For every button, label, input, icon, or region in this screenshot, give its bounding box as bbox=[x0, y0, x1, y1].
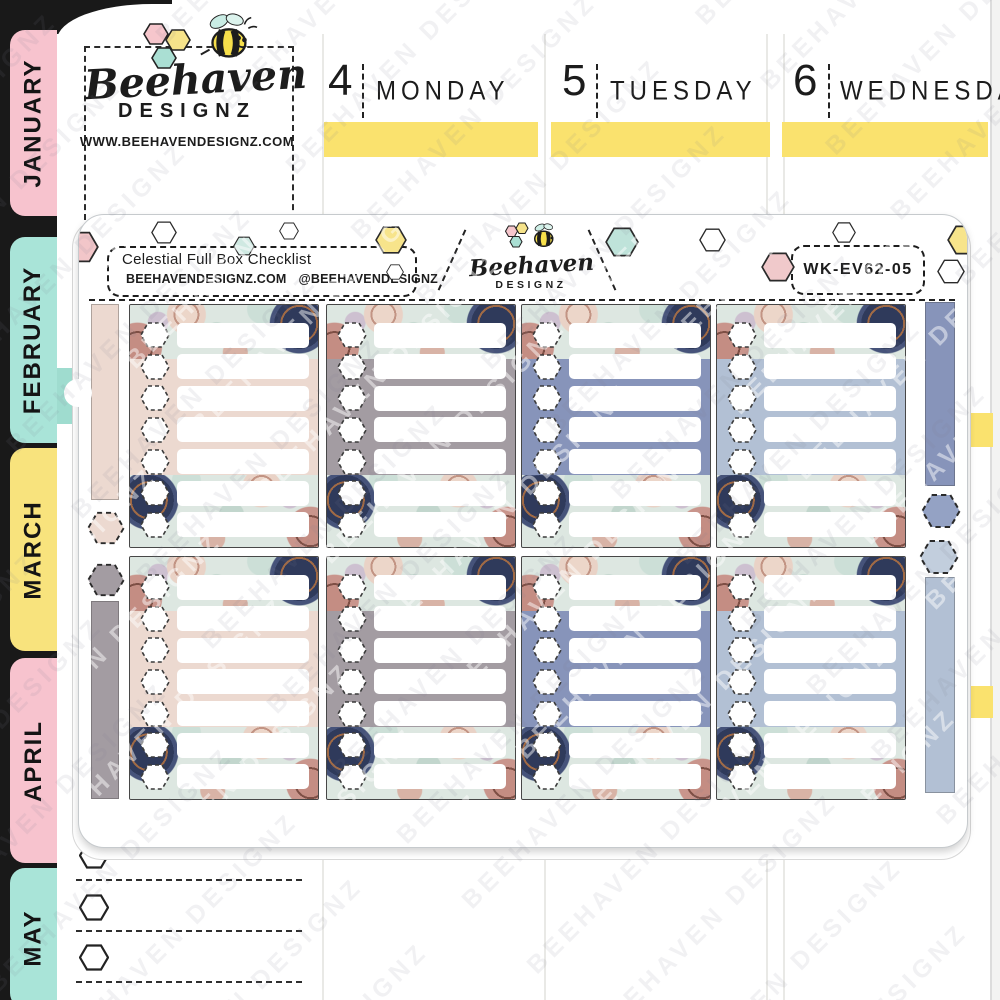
hexagon-checkbox bbox=[140, 417, 170, 443]
month-tab-january: JANUARY bbox=[10, 30, 57, 216]
hexagon-checkbox bbox=[532, 732, 562, 758]
page-right-edge-line bbox=[990, 0, 992, 1000]
hexagon-checkbox bbox=[140, 322, 170, 348]
hexagon-sticker bbox=[832, 222, 856, 243]
date-separator bbox=[362, 64, 364, 118]
checklist-line bbox=[764, 386, 896, 411]
hexagon-checkbox bbox=[727, 417, 757, 443]
checklist-row bbox=[532, 637, 701, 663]
brand-caps-text: DESIGNZ bbox=[84, 100, 290, 123]
checklist-row bbox=[337, 512, 506, 538]
checklist-line bbox=[764, 638, 896, 663]
hexagon-sticker-gray bbox=[87, 563, 125, 597]
checklist-line bbox=[177, 733, 309, 758]
hexagon-checkbox bbox=[532, 764, 562, 790]
hexagon-sticker-blush bbox=[87, 511, 125, 545]
checklist-row bbox=[532, 606, 701, 632]
checklist-row bbox=[727, 512, 896, 538]
checklist-row bbox=[727, 637, 896, 663]
checklist-line bbox=[764, 764, 896, 789]
checklist-line bbox=[177, 669, 309, 694]
checklist-row bbox=[532, 322, 701, 348]
side-strip-blush bbox=[91, 304, 119, 500]
checklist-row bbox=[140, 574, 309, 600]
tab-label: APRIL bbox=[20, 720, 48, 802]
month-tab-may: MAY bbox=[10, 868, 57, 1000]
checklist-line bbox=[374, 764, 506, 789]
checklist-rule bbox=[76, 981, 302, 983]
month-tab-march: MARCH bbox=[10, 448, 57, 651]
sheet-title: Celestial Full Box Checklist bbox=[122, 251, 415, 268]
hexagon-checkbox bbox=[337, 417, 367, 443]
checklist-row bbox=[337, 606, 506, 632]
checklist-line bbox=[374, 481, 506, 506]
checklist-line bbox=[569, 481, 701, 506]
hexagon-bullet bbox=[79, 894, 109, 921]
hexagon-checkbox bbox=[727, 764, 757, 790]
checklist-row bbox=[532, 449, 701, 475]
checklist-line bbox=[177, 386, 309, 411]
hexagon-checkbox bbox=[140, 354, 170, 380]
checklist-line bbox=[764, 701, 896, 726]
checklist-line bbox=[374, 638, 506, 663]
hexagon-checkbox bbox=[140, 732, 170, 758]
checklist-rule bbox=[76, 879, 302, 881]
hexagon-sticker-lightblue bbox=[919, 539, 959, 575]
hexagon-checkbox bbox=[140, 574, 170, 600]
checklist-line bbox=[764, 733, 896, 758]
checklist-rule bbox=[76, 930, 302, 932]
page-right-edge bbox=[992, 0, 1000, 1000]
hexagon-checkbox bbox=[727, 322, 757, 348]
checklist-line bbox=[374, 733, 506, 758]
hexagon-checkbox bbox=[337, 701, 367, 727]
checklist-line bbox=[177, 606, 309, 631]
hexagon-checkbox bbox=[337, 480, 367, 506]
hexagon-checkbox bbox=[337, 574, 367, 600]
checklist-line bbox=[569, 669, 701, 694]
checklist-row bbox=[727, 417, 896, 443]
checklist-row bbox=[140, 354, 309, 380]
checklist-row bbox=[337, 322, 506, 348]
checklist-line bbox=[569, 512, 701, 537]
sheet-handle-text: @BEEHAVENDESIGNZ bbox=[299, 272, 438, 286]
hexagon-sticker bbox=[761, 252, 795, 282]
checklist-row bbox=[727, 449, 896, 475]
date-separator bbox=[828, 64, 830, 118]
checklist-line bbox=[569, 386, 701, 411]
hexagon-checkbox bbox=[140, 637, 170, 663]
checklist-line bbox=[764, 575, 896, 600]
checklist-line bbox=[764, 449, 896, 474]
fullbox-sticker-gray bbox=[326, 304, 516, 548]
checklist-line bbox=[569, 606, 701, 631]
checklist-row bbox=[140, 417, 309, 443]
hexagon-checkbox bbox=[532, 701, 562, 727]
checklist-line bbox=[764, 512, 896, 537]
hexagon-checkbox bbox=[337, 606, 367, 632]
checklist-line bbox=[177, 701, 309, 726]
checklist-line bbox=[177, 354, 309, 379]
bee-icon bbox=[501, 219, 561, 251]
sheet-contact-row: BEEHAVENDESIGNZ.COM @BEEHAVENDESIGNZ bbox=[122, 271, 415, 286]
checklist-row bbox=[337, 449, 506, 475]
checklist-row bbox=[140, 701, 309, 727]
checklist-row bbox=[140, 732, 309, 758]
hexagon-sticker bbox=[233, 236, 255, 256]
checklist-line bbox=[374, 449, 506, 474]
hexagon-checkbox bbox=[337, 449, 367, 475]
checklist-row bbox=[532, 764, 701, 790]
checklist-row bbox=[532, 701, 701, 727]
checklist-row bbox=[727, 732, 896, 758]
hexagon-checkbox bbox=[532, 417, 562, 443]
checklist-row bbox=[532, 669, 701, 695]
hexagon-sticker bbox=[375, 226, 407, 254]
checklist-row bbox=[337, 701, 506, 727]
hexagon-checkbox bbox=[532, 512, 562, 538]
tab-label: MARCH bbox=[20, 500, 48, 599]
checklist-line bbox=[569, 449, 701, 474]
hexagon-checkbox bbox=[337, 764, 367, 790]
hexagon-checkbox bbox=[532, 449, 562, 475]
date-number-tuesday: 5 bbox=[562, 56, 586, 106]
hexagon-checkbox bbox=[727, 354, 757, 380]
checklist-row bbox=[727, 574, 896, 600]
day-label-tuesday: TUESDAY bbox=[610, 76, 757, 107]
date-number-monday: 4 bbox=[328, 56, 352, 106]
hexagon-checkbox bbox=[727, 574, 757, 600]
hexagon-checkbox bbox=[727, 512, 757, 538]
checklist-row bbox=[337, 732, 506, 758]
hexagon-sticker bbox=[151, 221, 177, 244]
fullbox-sticker-blush bbox=[129, 304, 319, 548]
hexagon-checkbox bbox=[727, 449, 757, 475]
hexagon-sticker bbox=[279, 222, 299, 240]
sticker-sheet: Celestial Full Box Checklist BEEHAVENDES… bbox=[78, 214, 968, 848]
checklist-line bbox=[374, 669, 506, 694]
sku-box: WK-EV62-05 bbox=[791, 245, 925, 295]
checklist-row bbox=[140, 764, 309, 790]
checklist-line bbox=[177, 481, 309, 506]
hexagon-sticker bbox=[78, 231, 99, 263]
hexagon-checkbox bbox=[727, 669, 757, 695]
month-tab-february: FEBRUARY bbox=[10, 237, 57, 443]
hexagon-checkbox bbox=[140, 480, 170, 506]
sheet-logo-script: Beehaven bbox=[468, 249, 593, 282]
hexagon-checkbox bbox=[532, 385, 562, 411]
hexagon-checkbox bbox=[337, 354, 367, 380]
checklist-row bbox=[532, 512, 701, 538]
checklist-row bbox=[727, 764, 896, 790]
checklist-line bbox=[177, 575, 309, 600]
hexagon-checkbox bbox=[727, 385, 757, 411]
hexagon-checkbox bbox=[140, 701, 170, 727]
side-strip-lightblue bbox=[925, 577, 955, 793]
hexagon-checkbox bbox=[532, 322, 562, 348]
checklist-line bbox=[569, 354, 701, 379]
hexagon-checkbox bbox=[727, 606, 757, 632]
checklist-row bbox=[140, 606, 309, 632]
checklist-line bbox=[177, 764, 309, 789]
checklist-row bbox=[140, 512, 309, 538]
checklist-line bbox=[177, 512, 309, 537]
hexagon-sticker bbox=[947, 225, 968, 255]
checklist-line bbox=[374, 386, 506, 411]
fullbox-sticker-lightblue bbox=[716, 304, 906, 548]
hexagon-sticker bbox=[937, 259, 965, 284]
checklist-line bbox=[764, 323, 896, 348]
hexagon-checkbox bbox=[140, 385, 170, 411]
checklist-line bbox=[569, 733, 701, 758]
planner-product-image: JANUARY FEBRUARY MARCH APRIL MAY Beehave… bbox=[0, 0, 1000, 1000]
checklist-line bbox=[374, 354, 506, 379]
washi-strip-monday bbox=[324, 122, 538, 157]
checklist-row bbox=[140, 322, 309, 348]
hexagon-checkbox bbox=[337, 669, 367, 695]
checklist-line bbox=[764, 606, 896, 631]
hexagon-checkbox bbox=[727, 480, 757, 506]
checklist-line bbox=[374, 417, 506, 442]
checklist-line bbox=[177, 638, 309, 663]
sheet-label-box: Celestial Full Box Checklist BEEHAVENDES… bbox=[107, 246, 417, 297]
hexagon-checkbox bbox=[140, 669, 170, 695]
checklist-row bbox=[727, 606, 896, 632]
hexagon-checkbox bbox=[337, 512, 367, 538]
sheet-brand-logo: Beehaven DESIGNZ bbox=[469, 219, 593, 297]
checklist-line bbox=[569, 575, 701, 600]
checklist-row bbox=[532, 732, 701, 758]
checklist-row bbox=[727, 354, 896, 380]
checklist-row bbox=[337, 574, 506, 600]
checklist-line bbox=[374, 701, 506, 726]
hexagon-checkbox bbox=[727, 732, 757, 758]
tab-label: JANUARY bbox=[20, 58, 48, 187]
hexagon-checkbox bbox=[140, 512, 170, 538]
checklist-row bbox=[532, 385, 701, 411]
checklist-row bbox=[337, 669, 506, 695]
checklist-line bbox=[764, 669, 896, 694]
checklist-row bbox=[337, 480, 506, 506]
fullbox-sticker-gray bbox=[326, 556, 516, 800]
checklist-row bbox=[727, 701, 896, 727]
checklist-line bbox=[177, 323, 309, 348]
checklist-line bbox=[177, 449, 309, 474]
hexagon-sticker bbox=[386, 264, 404, 280]
checklist-line bbox=[569, 701, 701, 726]
checklist-line bbox=[569, 323, 701, 348]
checklist-row bbox=[727, 669, 896, 695]
side-strip-periwinkle bbox=[925, 302, 955, 486]
checklist-line bbox=[177, 417, 309, 442]
checklist-row bbox=[727, 480, 896, 506]
checklist-line bbox=[374, 606, 506, 631]
checklist-line bbox=[374, 512, 506, 537]
hexagon-checkbox bbox=[140, 449, 170, 475]
day-label-wednesday: WEDNESDAY bbox=[840, 76, 1000, 107]
checklist-row bbox=[140, 480, 309, 506]
hexagon-checkbox bbox=[532, 574, 562, 600]
checklist-row bbox=[532, 354, 701, 380]
hexagon-checkbox bbox=[532, 669, 562, 695]
fullbox-sticker-lightblue bbox=[716, 556, 906, 800]
hexagon-checkbox bbox=[140, 764, 170, 790]
hexagon-checkbox bbox=[337, 322, 367, 348]
checklist-row bbox=[727, 385, 896, 411]
checklist-row bbox=[337, 385, 506, 411]
checklist-line bbox=[569, 638, 701, 663]
checklist-line bbox=[569, 417, 701, 442]
hexagon-checkbox bbox=[337, 732, 367, 758]
side-strip-gray bbox=[91, 601, 119, 799]
date-separator bbox=[596, 64, 598, 118]
checklist-row bbox=[727, 322, 896, 348]
tab-label: MAY bbox=[20, 909, 48, 966]
banner-dash-left bbox=[438, 229, 467, 290]
hexagon-sticker-periwinkle bbox=[921, 493, 961, 529]
checklist-row bbox=[532, 417, 701, 443]
checklist-line bbox=[764, 481, 896, 506]
tab-label: FEBRUARY bbox=[20, 266, 48, 414]
hexagon-checkbox bbox=[532, 354, 562, 380]
fullbox-sticker-periwinkle bbox=[521, 304, 711, 548]
checklist-row bbox=[140, 669, 309, 695]
hexagon-checkbox bbox=[532, 637, 562, 663]
checklist-row bbox=[337, 637, 506, 663]
checklist-row bbox=[532, 574, 701, 600]
checklist-row bbox=[140, 637, 309, 663]
brand-url-text: WWW.BEEHAVENDESIGNZ.COM bbox=[74, 134, 300, 149]
checklist-line bbox=[374, 323, 506, 348]
hexagon-checkbox bbox=[337, 385, 367, 411]
hexagon-sticker bbox=[605, 227, 639, 257]
hexagon-checkbox bbox=[727, 637, 757, 663]
checklist-row bbox=[140, 449, 309, 475]
date-number-wednesday: 6 bbox=[793, 56, 817, 106]
checklist-row bbox=[337, 764, 506, 790]
checklist-row bbox=[140, 385, 309, 411]
checklist-line bbox=[374, 575, 506, 600]
hexagon-checkbox bbox=[140, 606, 170, 632]
hexagon-bullet bbox=[79, 944, 109, 971]
checklist-line bbox=[569, 764, 701, 789]
washi-strip-tuesday bbox=[551, 122, 770, 157]
sheet-edge-notch bbox=[64, 379, 92, 407]
day-label-monday: MONDAY bbox=[376, 76, 510, 107]
sku-text: WK-EV62-05 bbox=[803, 261, 912, 279]
checklist-row bbox=[337, 417, 506, 443]
checklist-line bbox=[764, 417, 896, 442]
hexagon-checkbox bbox=[337, 637, 367, 663]
month-tab-april: APRIL bbox=[10, 658, 57, 863]
checklist-row bbox=[532, 480, 701, 506]
washi-strip-wednesday bbox=[782, 122, 988, 157]
fullbox-sticker-blush bbox=[129, 556, 319, 800]
hexagon-sticker bbox=[699, 228, 726, 252]
hexagon-checkbox bbox=[532, 606, 562, 632]
checklist-row bbox=[337, 354, 506, 380]
checklist-line bbox=[764, 354, 896, 379]
header-cut-line bbox=[89, 299, 955, 301]
hexagon-checkbox bbox=[532, 480, 562, 506]
sheet-site-text: BEEHAVENDESIGNZ.COM bbox=[126, 272, 287, 286]
hexagon-checkbox bbox=[727, 701, 757, 727]
fullbox-sticker-periwinkle bbox=[521, 556, 711, 800]
